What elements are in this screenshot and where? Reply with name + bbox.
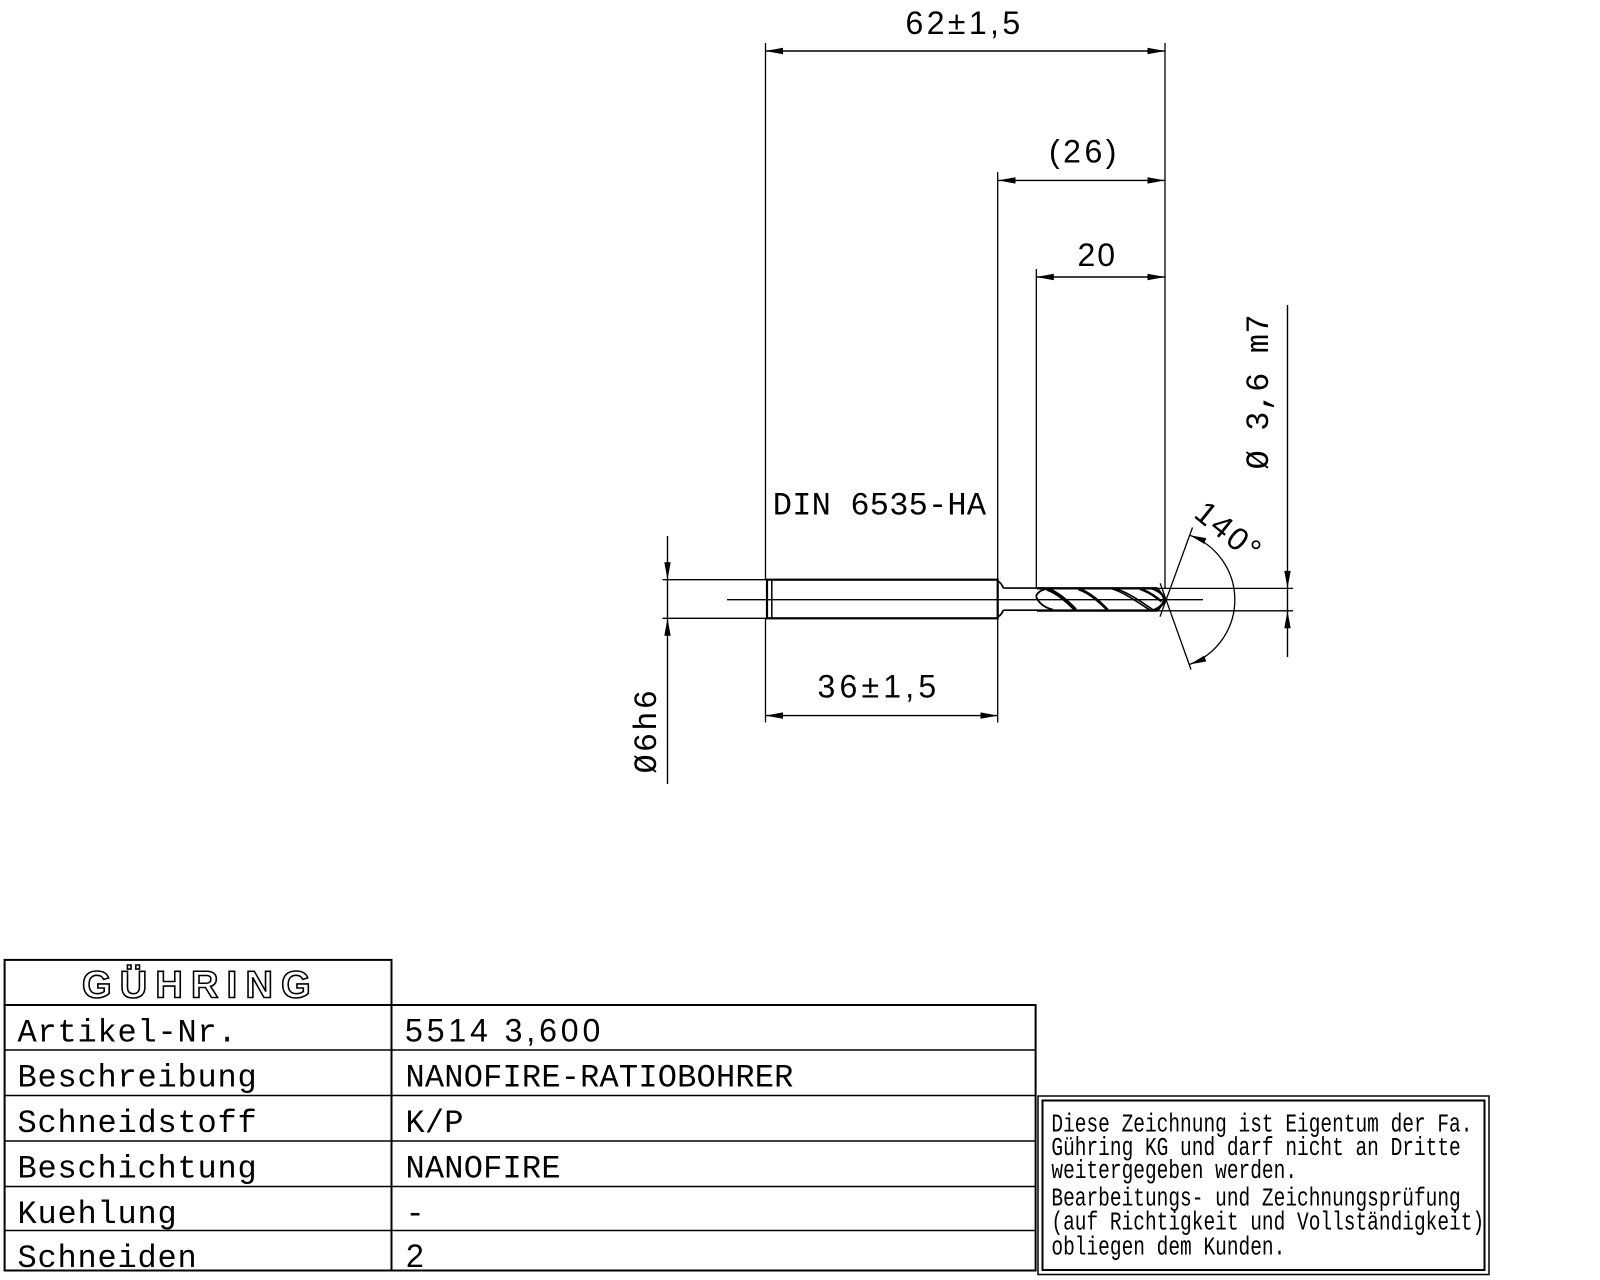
svg-text:Ø6h6: Ø6h6 (629, 688, 666, 774)
svg-text:weitergegeben werden.: weitergegeben werden. (1051, 1157, 1297, 1186)
svg-text:2: 2 (406, 1238, 424, 1274)
svg-text:5514 3,600: 5514 3,600 (405, 1012, 604, 1048)
svg-text:NANOFIRE-RATIOBOHRER: NANOFIRE-RATIOBOHRER (406, 1059, 794, 1096)
svg-text:36±1,5: 36±1,5 (818, 669, 941, 705)
svg-text:Schneiden: Schneiden (18, 1240, 198, 1277)
svg-text:Beschreibung: Beschreibung (18, 1059, 258, 1096)
svg-text:(26): (26) (1049, 134, 1120, 170)
svg-text:obliegen dem Kunden.: obliegen dem Kunden. (1051, 1233, 1285, 1262)
svg-text:Schneidstoff: Schneidstoff (18, 1105, 258, 1142)
svg-text:20: 20 (1078, 237, 1118, 273)
svg-text:140°: 140° (1188, 494, 1270, 570)
svg-text:Artikel-Nr.: Artikel-Nr. (18, 1014, 238, 1051)
svg-text:NANOFIRE: NANOFIRE (406, 1150, 561, 1187)
svg-text:Ø 3,6 m7: Ø 3,6 m7 (1241, 314, 1278, 469)
svg-text:62±1,5: 62±1,5 (906, 5, 1024, 41)
svg-text:GÜHRING: GÜHRING (82, 963, 319, 1006)
svg-text:Beschichtung: Beschichtung (18, 1150, 258, 1187)
svg-text:-: - (406, 1196, 425, 1233)
svg-text:Kuehlung: Kuehlung (18, 1196, 178, 1233)
svg-text:DIN 6535-HA: DIN 6535-HA (773, 488, 987, 525)
svg-text:K/P: K/P (406, 1105, 464, 1142)
